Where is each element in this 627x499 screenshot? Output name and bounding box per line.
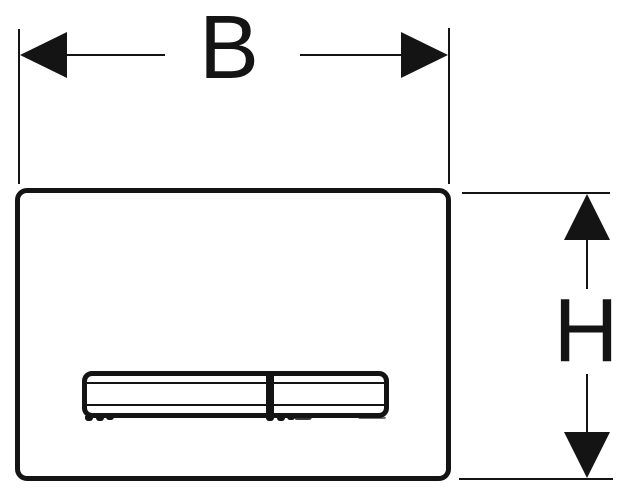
- arrow-right-icon: [401, 32, 448, 78]
- arrow-down-icon: [564, 432, 610, 478]
- button-tooth: [85, 416, 93, 421]
- arrow-left-icon: [20, 32, 67, 78]
- button-tooth: [106, 416, 114, 420]
- height-dimension-line-bottom: [586, 374, 588, 433]
- width-dimension-label: B: [184, 3, 274, 93]
- button-divider: [266, 371, 274, 418]
- width-dimension-line-left: [67, 54, 165, 56]
- button-tooth: [277, 416, 285, 421]
- button-shadow-mark: [358, 417, 386, 419]
- flush-button-bar: [82, 371, 389, 418]
- width-extension-line-right: [448, 28, 450, 184]
- button-shadow-mark: [294, 417, 312, 420]
- button-tooth: [96, 416, 104, 421]
- button-tooth: [266, 416, 274, 421]
- height-dimension-label: H: [541, 286, 627, 376]
- width-dimension-line-right: [300, 54, 402, 56]
- button-top-groove: [86, 382, 385, 384]
- arrow-up-icon: [564, 194, 610, 240]
- flush-plate-outline: [15, 188, 451, 481]
- dimension-drawing: B H: [0, 0, 627, 499]
- height-extension-line-bottom: [459, 478, 613, 480]
- button-bottom-groove: [86, 404, 385, 406]
